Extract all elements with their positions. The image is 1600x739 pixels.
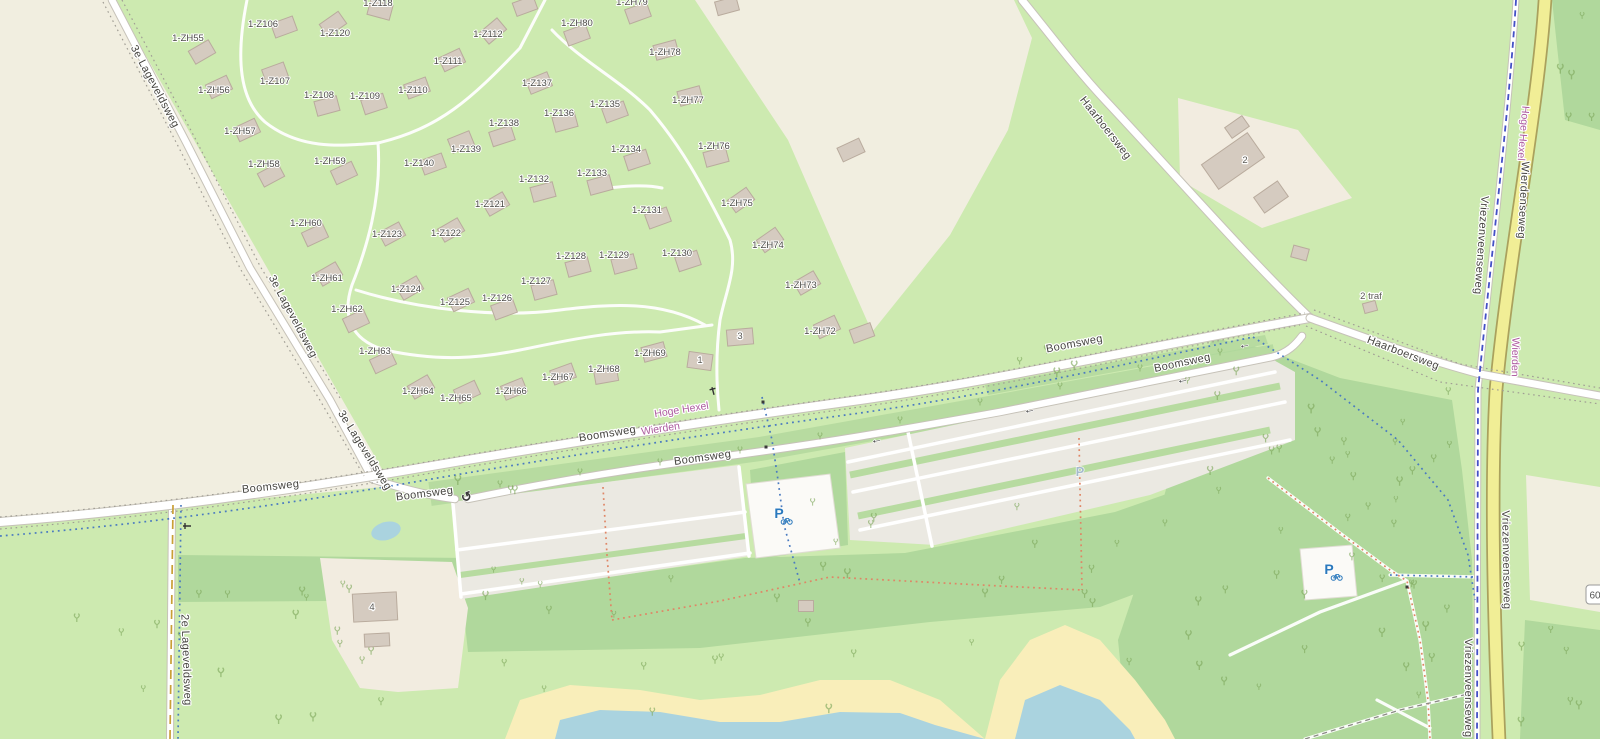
cabin-label: 1-ZH67: [542, 372, 574, 383]
cabin-label: 1-ZH68: [588, 364, 620, 375]
cabin-label: 1-Z122: [431, 228, 461, 239]
cabin-label: 1-Z124: [391, 284, 421, 295]
cabin-label: 1-Z118: [363, 0, 392, 9]
crossing-marker: [765, 446, 768, 449]
car-parking-icon: P: [1076, 464, 1085, 479]
cabin-label: 1-ZH79: [616, 0, 648, 8]
building-number-label: 2: [1242, 155, 1247, 166]
cabin-label: 1-ZH58: [248, 159, 280, 170]
bicycle-parking-p: P: [774, 505, 783, 521]
speed-limit-badge: 60: [1586, 585, 1600, 604]
cabin-label: 1-ZH77: [672, 95, 704, 106]
cabin-label: 1-Z127: [521, 276, 551, 287]
building: [799, 601, 814, 612]
cabin-label: 1-ZH80: [561, 18, 593, 29]
cabin-label: 1-Z140: [404, 158, 434, 169]
crossing-marker: [762, 401, 765, 404]
landcover-layer: [0, 0, 1600, 739]
cabin-label: 1-ZH64: [402, 386, 434, 397]
cabin-label: 1-Z121: [475, 199, 505, 210]
map-note-label: 2 traf: [1360, 291, 1382, 302]
cabin-label: 1-ZH74: [752, 240, 784, 251]
cabin-label: 1-Z133: [577, 168, 607, 179]
cabin-label: 1-Z126: [482, 293, 512, 304]
cabin-label: 1-Z136: [544, 108, 574, 119]
cabin-label: 1-ZH76: [698, 141, 730, 152]
cabin-label: 1-Z123: [372, 229, 402, 240]
building: [352, 592, 397, 622]
cabin-label: 1-Z137: [522, 78, 552, 89]
map-canvas[interactable]: ←←←←↺PPP 1-ZH551-Z1061-Z1181-Z1201-Z1121…: [0, 0, 1600, 739]
cabin-label: 1-Z120: [320, 28, 350, 39]
street-name-label: Vriezenveenseweg: [1462, 639, 1474, 738]
crossing-marker: [1406, 586, 1409, 589]
cabin-label: 1-ZH61: [311, 273, 343, 284]
speed-limit-text: 60: [1589, 591, 1600, 602]
building-number-label: 3: [737, 331, 742, 342]
cabin-label: 1-Z110: [398, 85, 427, 96]
cabin-label: 1-ZH57: [224, 126, 256, 137]
cabin-label: 1-ZH66: [495, 386, 527, 397]
cabin-label: 1-ZH63: [359, 346, 391, 357]
cabin-label: 1-Z106: [248, 19, 278, 30]
cabin-label: 1-ZH69: [634, 348, 666, 359]
street-name-label: Vriezenveenseweg: [1499, 510, 1513, 609]
cabin-label: 1-Z131: [632, 205, 662, 216]
cabin-label: 1-Z135: [590, 99, 620, 110]
cabin-label: 1-Z112: [473, 29, 502, 40]
cabin-label: 1-ZH65: [440, 393, 472, 404]
cabin-label: 1-ZH56: [198, 85, 230, 96]
cabin-label: 1-Z109: [350, 91, 380, 102]
cabin-label: 1-Z134: [611, 144, 641, 155]
cabin-label: 1-Z138: [489, 118, 519, 129]
cabin-label: 1-ZH55: [172, 33, 204, 44]
cabin-label: 1-ZH62: [331, 304, 363, 315]
cabin-label: 1-ZH78: [649, 47, 681, 58]
cabin-label: 1-ZH72: [804, 326, 836, 337]
cabin-label: 1-ZH59: [314, 156, 346, 167]
cabin-label: 1-Z128: [556, 251, 586, 262]
boundary-place-label: Wierden: [1509, 337, 1522, 376]
cabin-label: 1-ZH73: [785, 280, 817, 291]
cabin-label: 1-Z125: [440, 297, 470, 308]
bicycle-parking-p: P: [1324, 561, 1333, 577]
map-svg[interactable]: ←←←←↺PPP 1-ZH551-Z1061-Z1181-Z1201-Z1121…: [0, 0, 1600, 739]
building-number-label: 4: [369, 602, 374, 613]
cabin-label: 1-Z107: [260, 76, 290, 87]
cabin-label: 1-Z129: [599, 250, 629, 261]
cabin-label: 1-Z111: [434, 56, 463, 67]
oneway-arrow-icon: ←: [869, 431, 883, 447]
oneway-arrow-icon: ←: [1237, 336, 1251, 352]
cabin-label: 1-Z108: [304, 90, 334, 101]
building: [364, 633, 390, 647]
cabin-label: 1-Z139: [451, 144, 481, 155]
cabin-label: 1-ZH75: [721, 198, 753, 209]
cabin-label: 1-Z132: [519, 174, 549, 185]
cabin-label: 1-ZH60: [290, 218, 322, 229]
building-number-label: 1: [697, 355, 702, 366]
cabin-label: 1-Z130: [662, 248, 692, 259]
